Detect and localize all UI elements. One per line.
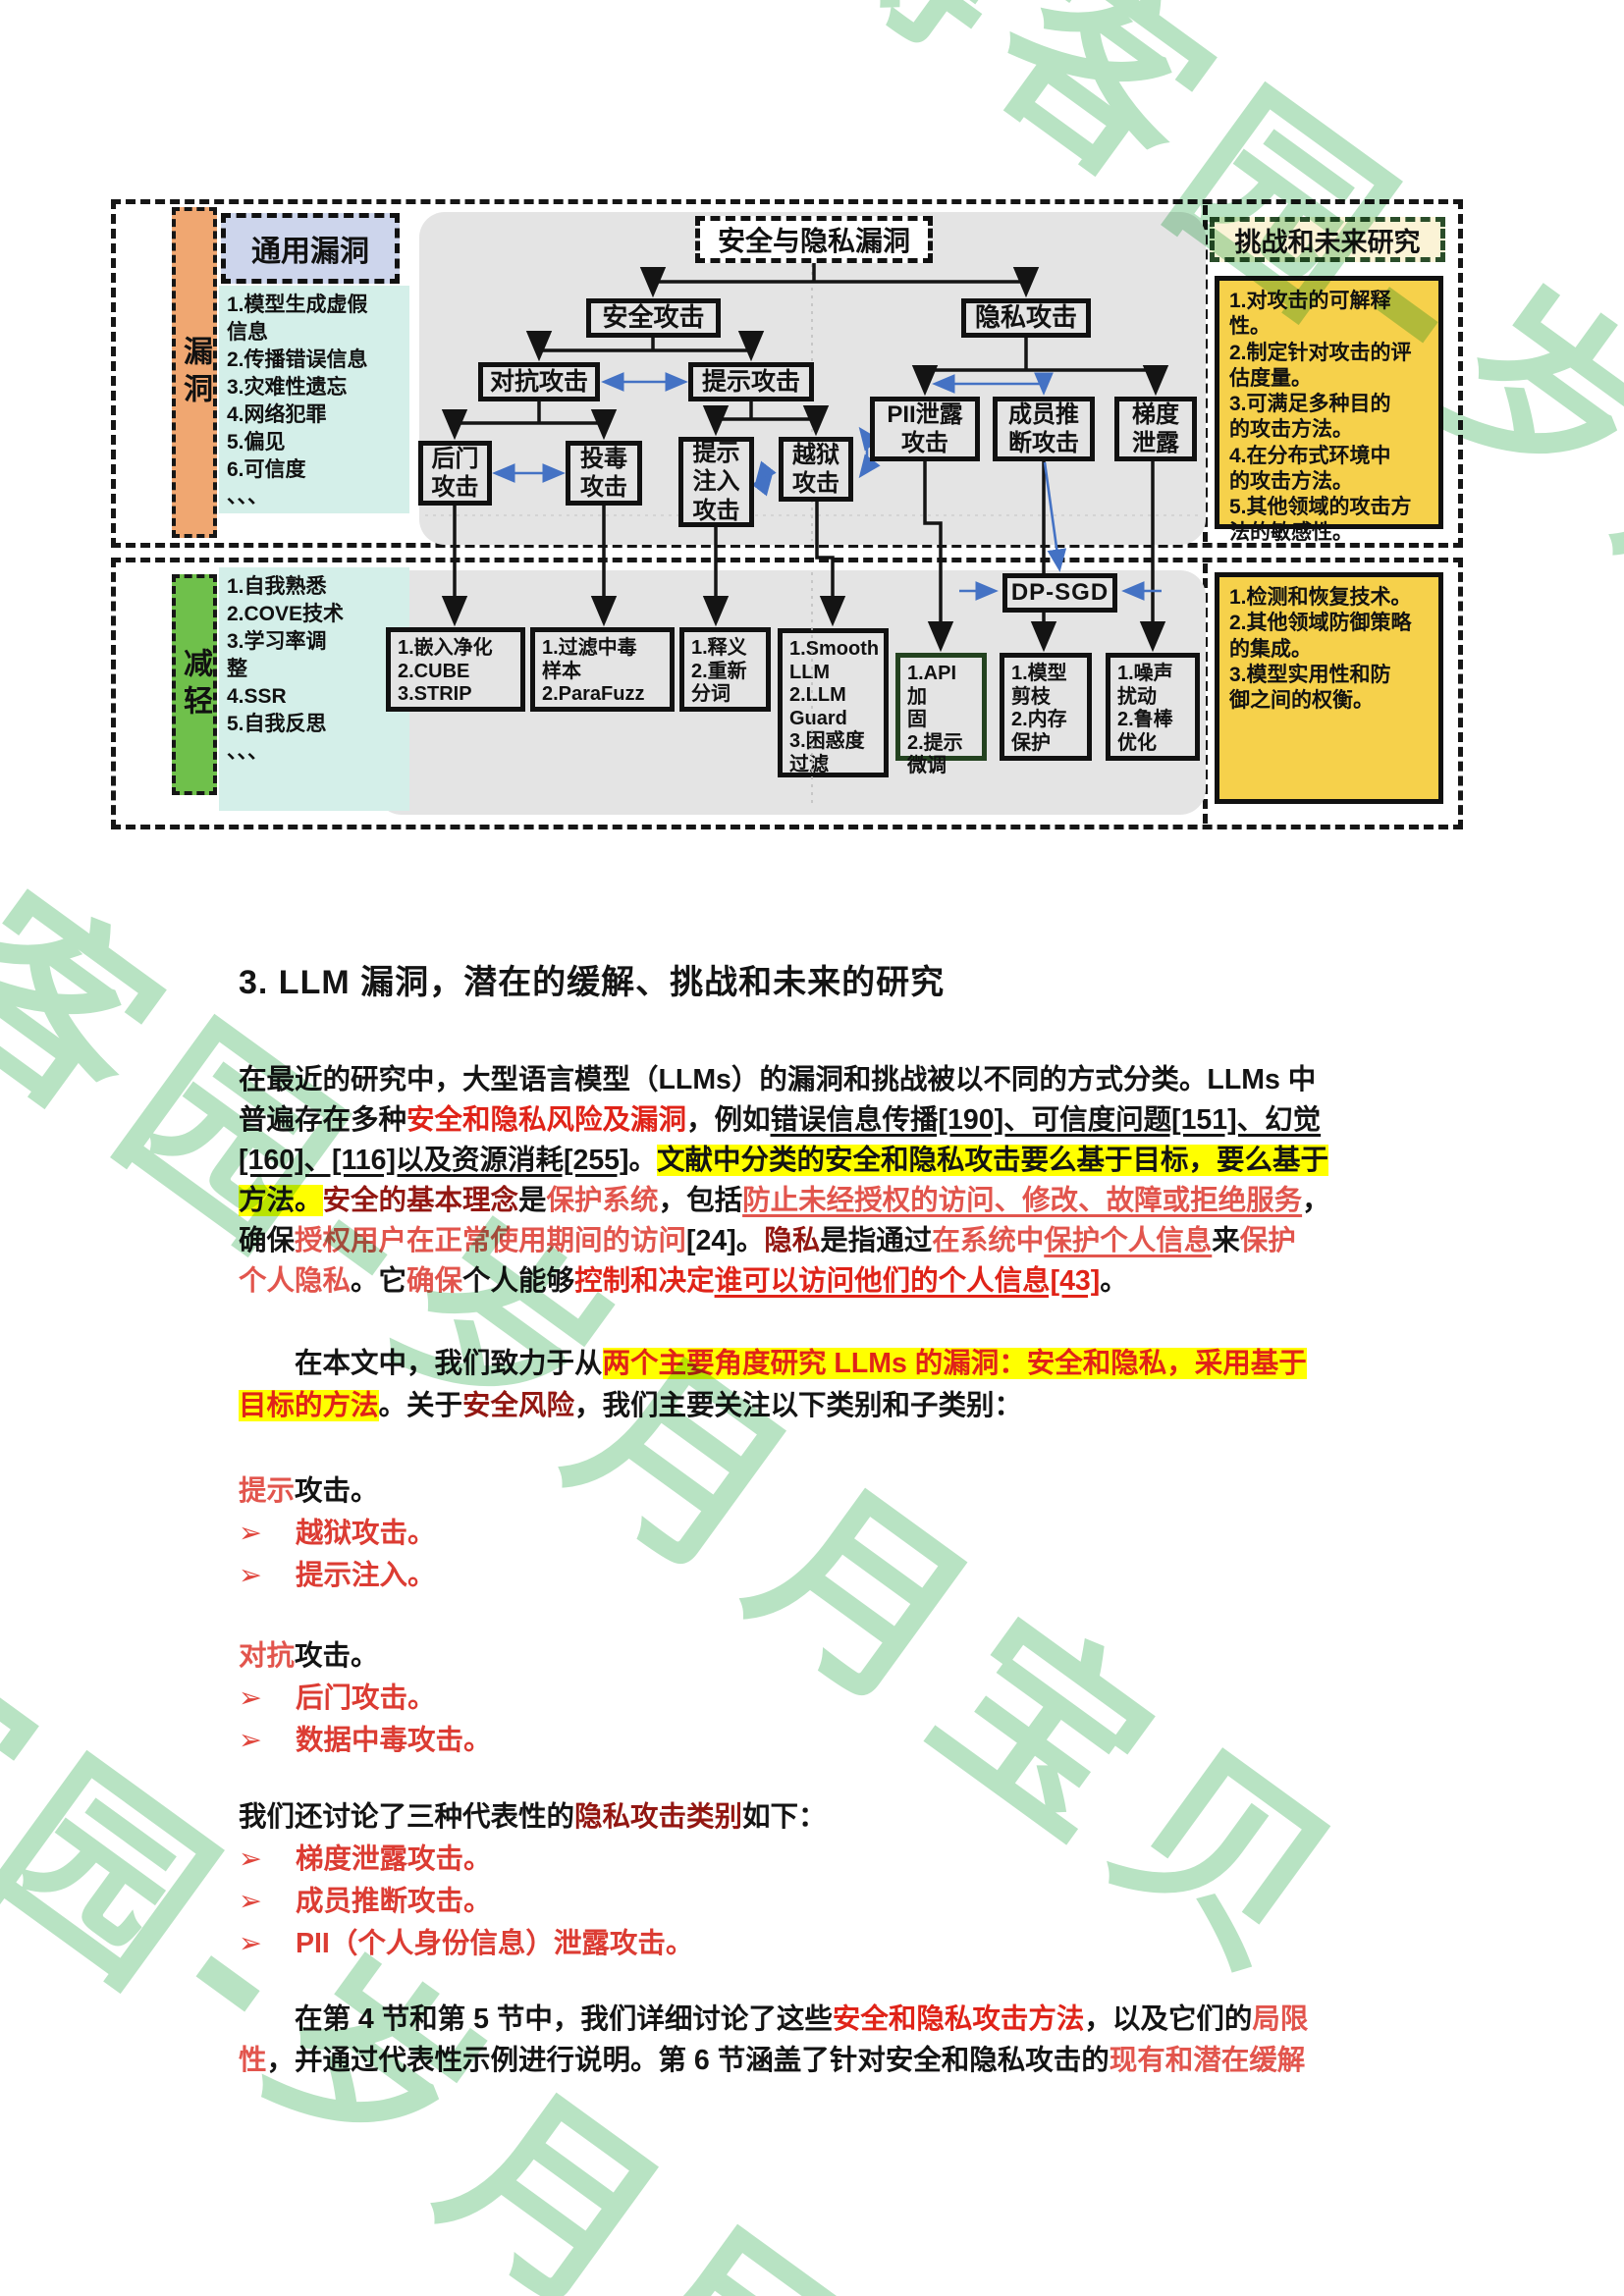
vulnerability-diagram: 漏洞 通用漏洞 1.模型生成虚假 信息 2.传播错误信息 3.灾难性遗忘 4.网… xyxy=(111,199,1463,829)
arrow-bullet-icon: ➢ xyxy=(239,1923,262,1965)
node-security-attacks: 安全攻击 xyxy=(586,298,721,338)
attack-challenges-box: 1.对攻击的可解释性。 2.制定针对攻击的评 估度量。 3.可满足多种目的 的攻… xyxy=(1215,276,1443,529)
general-vulnerabilities-header: 通用漏洞 xyxy=(221,213,400,284)
list-item: ➢ 提示注入。 xyxy=(239,1555,436,1597)
challenges-future-research-header: 挑战和未来研究 xyxy=(1210,217,1445,262)
document-page: 博客园-岁月月宝贝 博客园-岁月月宝贝 博客园-岁月月宝贝 xyxy=(0,0,1624,2296)
node-prompt-attacks: 提示攻击 xyxy=(688,362,814,401)
paragraph-sections-overview: 在第 4 节和第 5 节中，我们详细讨论了这些安全和隐私攻击方法，以及它们的局限… xyxy=(239,1999,1402,2081)
list-header: 我们还讨论了三种代表性的隐私攻击类别如下： xyxy=(239,1796,827,1839)
mitigation-box-pii: 1.API加 固 2.提示 微调 xyxy=(895,653,987,761)
list-item-label: 提示注入。 xyxy=(296,1560,436,1591)
list-item: ➢ 梯度泄露攻击。 xyxy=(239,1839,827,1881)
section-heading: 3. LLM 漏洞，潜在的缓解、挑战和未来的研究 xyxy=(239,955,945,1003)
paragraph-approach: 在本文中，我们致力于从两个主要角度研究 LLMs 的漏洞：安全和隐私，采用基于 … xyxy=(239,1343,1402,1427)
mitigation-box-gradient: 1.噪声 扰动 2.鲁棒 优化 xyxy=(1106,653,1200,761)
list-item: ➢ 数据中毒攻击。 xyxy=(239,1720,492,1762)
list-item-label: 成员推断攻击。 xyxy=(296,1886,492,1917)
node-security-privacy-vulnerabilities: 安全与隐私漏洞 xyxy=(695,216,933,263)
node-jailbreak-attack: 越狱 攻击 xyxy=(779,437,853,502)
list-item-label: PII（个人身份信息）泄露攻击。 xyxy=(296,1928,693,1959)
node-backdoor-attack: 后门 攻击 xyxy=(418,441,492,506)
paragraph-overview: 在最近的研究中，大型语言模型（LLMs）的漏洞和挑战被以不同的方式分类。LLMs… xyxy=(239,1060,1402,1302)
list-item: ➢ 成员推断攻击。 xyxy=(239,1881,827,1923)
node-prompt-injection-attack: 提示 注入 攻击 xyxy=(678,437,754,527)
node-dp-sgd: DP-SGD xyxy=(1002,573,1117,613)
node-membership-inference-attack: 成员推 断攻击 xyxy=(993,397,1095,461)
prompt-attack-list: 提示攻击。 ➢ 越狱攻击。 ➢ 提示注入。 xyxy=(239,1470,436,1597)
mitigation-box-prompt-injection: 1.释义 2.重新 分词 xyxy=(679,627,771,712)
mitigation-side-label: 减轻 xyxy=(172,574,217,795)
arrow-bullet-icon: ➢ xyxy=(239,1555,262,1597)
node-privacy-attacks: 隐私攻击 xyxy=(961,298,1091,338)
mitigation-box-backdoor: 1.嵌入净化 2.CUBE 3.STRIP xyxy=(386,627,525,712)
arrow-bullet-icon: ➢ xyxy=(239,1881,262,1923)
vulnerability-side-label: 漏洞 xyxy=(172,207,217,538)
list-item-label: 越狱攻击。 xyxy=(296,1518,436,1549)
adversarial-attack-list: 对抗攻击。 ➢ 后门攻击。 ➢ 数据中毒攻击。 xyxy=(239,1635,492,1762)
arrow-bullet-icon: ➢ xyxy=(239,1513,262,1555)
list-header: 提示攻击。 xyxy=(239,1470,436,1513)
general-vulnerabilities-list: 1.模型生成虚假 信息 2.传播错误信息 3.灾难性遗忘 4.网络犯罪 5.偏见… xyxy=(219,286,409,513)
list-header: 对抗攻击。 xyxy=(239,1635,492,1678)
privacy-attack-list: 我们还讨论了三种代表性的隐私攻击类别如下： ➢ 梯度泄露攻击。 ➢ 成员推断攻击… xyxy=(239,1796,827,1965)
arrow-bullet-icon: ➢ xyxy=(239,1678,262,1720)
node-adversarial-attacks: 对抗攻击 xyxy=(478,362,600,401)
list-item: ➢ 后门攻击。 xyxy=(239,1678,492,1720)
defense-challenges-box: 1.检测和恢复技术。 2.其他领域防御策略 的集成。 3.模型实用性和防 御之间… xyxy=(1215,572,1443,804)
list-item: ➢ 越狱攻击。 xyxy=(239,1513,436,1555)
list-item-label: 后门攻击。 xyxy=(296,1682,436,1714)
node-gradient-leakage: 梯度 泄露 xyxy=(1114,397,1197,461)
list-item: ➢ PII（个人身份信息）泄露攻击。 xyxy=(239,1923,827,1965)
arrow-bullet-icon: ➢ xyxy=(239,1839,262,1881)
node-pii-leakage-attack: PII泄露 攻击 xyxy=(870,397,980,461)
mitigation-box-poisoning: 1.过滤中毒 样本 2.ParaFuzz xyxy=(530,627,675,712)
list-item-label: 数据中毒攻击。 xyxy=(296,1725,492,1756)
list-item-label: 梯度泄露攻击。 xyxy=(296,1843,492,1875)
arrow-bullet-icon: ➢ xyxy=(239,1720,262,1762)
mitigation-box-jailbreak: 1.Smooth LLM 2.LLM Guard 3.困惑度 过滤 xyxy=(778,628,889,777)
mitigation-box-membership: 1.模型 剪枝 2.内存 保护 xyxy=(1000,653,1092,761)
mitigation-techniques-list: 1.自我熟悉 2.COVE技术 3.学习率调 整 4.SSR 5.自我反思 、、… xyxy=(219,567,409,811)
node-poisoning-attack: 投毒 攻击 xyxy=(566,441,642,506)
